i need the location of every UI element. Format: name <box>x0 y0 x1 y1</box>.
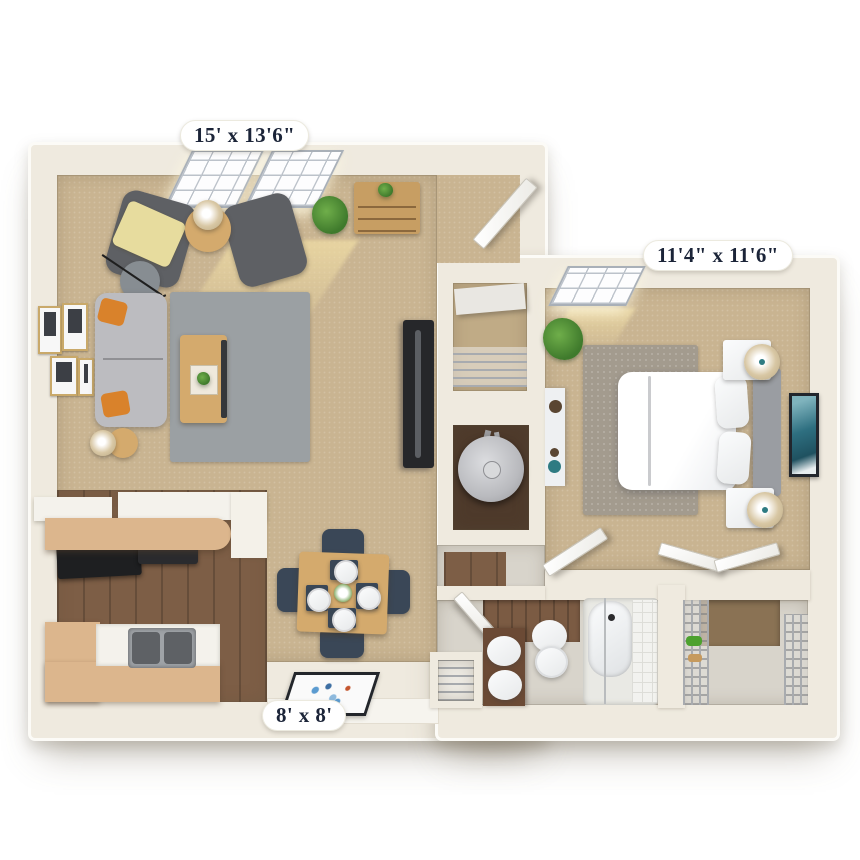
living-room-dimension-label: 15' x 13'6" <box>180 120 309 151</box>
tray-plant <box>197 372 210 385</box>
plate <box>307 588 331 612</box>
hallway-wood-inset <box>444 552 506 588</box>
toilet-bowl <box>535 646 568 678</box>
closet-back-wall <box>700 600 780 646</box>
living-room-dimension-text: 15' x 13'6" <box>194 123 295 147</box>
shower-tile <box>632 600 657 703</box>
kitchen-stub-wall <box>231 492 267 558</box>
floor-plant <box>312 196 348 234</box>
plate <box>334 560 358 584</box>
sink-basin <box>132 632 160 664</box>
closet-shelving-right <box>784 614 808 705</box>
sofa-cushion-line <box>103 358 163 360</box>
vanity-sink <box>487 636 521 666</box>
dresser-decor <box>548 460 561 473</box>
tv-screen <box>415 330 421 458</box>
shower-rod <box>604 598 606 704</box>
water-heater-cap <box>483 461 501 479</box>
closet-shelving-left <box>683 600 709 705</box>
bathtub-basin <box>588 601 632 677</box>
dining-dimension-label: 8' x 8' <box>262 700 346 731</box>
lamp-finial <box>759 359 765 365</box>
wall-picture <box>50 356 78 396</box>
breakfast-bar <box>45 518 231 550</box>
sink-basin <box>164 632 192 664</box>
closet-item-tan <box>688 654 702 662</box>
duvet-fold <box>648 376 651 486</box>
dining-dimension-text: 8' x 8' <box>276 703 332 727</box>
wall-picture <box>62 303 88 351</box>
coat-closet-shelf <box>453 347 527 387</box>
sofa-pillow <box>100 390 131 418</box>
plate <box>332 608 356 632</box>
floorplan-canvas: 15' x 13'6" 11'4" x 11'6" 8' x 8' <box>0 0 860 860</box>
bedroom-plant <box>543 318 583 360</box>
bath-closet-divider-wall <box>658 585 685 708</box>
wall-picture <box>38 306 62 354</box>
dresser-decor <box>550 448 559 457</box>
pillow <box>716 431 752 485</box>
linen-closet-shelves <box>438 660 474 701</box>
dresser-decor <box>549 400 562 413</box>
pillow <box>714 375 750 429</box>
vanity-sink <box>488 670 522 700</box>
kitchen-counter-front <box>45 662 220 702</box>
bookshelf-shelves <box>358 196 416 232</box>
wall-picture <box>78 358 94 396</box>
closet-item-green <box>686 636 702 646</box>
bedroom-wall-art <box>789 393 819 477</box>
coffee-table-accent <box>221 340 227 418</box>
bedroom-dimension-label: 11'4" x 11'6" <box>643 240 793 271</box>
lamp-finial <box>762 507 768 513</box>
shelf-plant <box>378 183 393 197</box>
dining-chair <box>320 630 364 658</box>
plate <box>357 586 381 610</box>
centerpiece-flowers <box>334 584 352 602</box>
headboard <box>753 368 781 496</box>
tub-drain <box>608 614 615 621</box>
bedroom-dimension-text: 11'4" x 11'6" <box>657 243 779 267</box>
table-lamp <box>193 200 223 230</box>
reading-lamp <box>90 430 116 456</box>
